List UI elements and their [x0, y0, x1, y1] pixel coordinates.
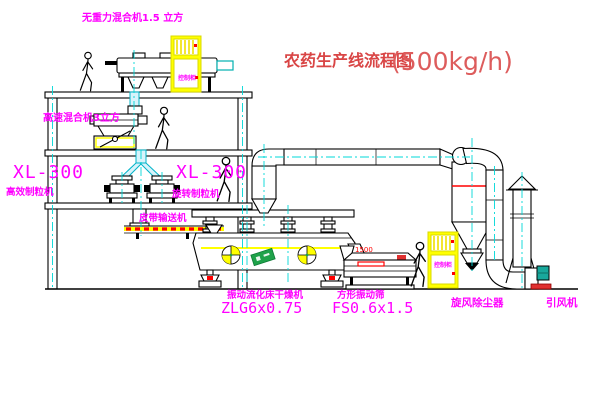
dryer-foot-left	[199, 270, 221, 287]
label-granulator-left-name: 高效制粒机	[6, 186, 54, 198]
building-slab-roof	[45, 92, 252, 98]
label-fan: 引风机	[546, 296, 578, 309]
fan-base	[531, 284, 551, 289]
diagram-title-capacity: (500kg/h)	[391, 47, 513, 76]
control-cabinet-1	[171, 36, 201, 92]
building-slab-mid	[45, 150, 252, 156]
exhaust-duct	[252, 149, 456, 213]
building-slab-low	[45, 203, 252, 209]
label-dryer-model: ZLG6x0.75	[221, 299, 302, 317]
label-belt-conveyor: 皮带输送机	[138, 212, 187, 224]
square-vibrating-screen	[340, 244, 416, 289]
label-cabinet-1: 控制柜	[178, 74, 196, 82]
label-high-speed-mixer: 高速混合机3立方	[43, 111, 120, 124]
label-granulator-right-model: XL-300	[176, 162, 247, 183]
induced-draft-fan	[525, 266, 551, 289]
flow-diagram-canvas: 无重力混合机1.5 立方 农药生产线流程图 (500kg/h) 高速混合机3立方…	[0, 0, 600, 403]
label-screen-dimension: 1500	[355, 246, 373, 254]
label-gravity-mixer: 无重力混合机1.5 立方	[81, 11, 183, 24]
dryer-body	[193, 233, 355, 270]
dryer-foot-right	[321, 270, 343, 287]
control-cabinet-2	[428, 232, 458, 288]
label-granulator-left-model: XL-300	[13, 162, 84, 183]
fluid-bed-dryer	[192, 210, 355, 287]
person-2	[156, 107, 169, 148]
label-cyclone: 旋风除尘器	[450, 296, 504, 309]
label-screen-model: FS0.6x1.5	[332, 299, 413, 317]
dryer-top-manifold	[192, 210, 354, 217]
dryer-target-mark-2	[298, 246, 316, 264]
person-1	[80, 52, 92, 90]
label-granulator-right-name: 旋转制粒机	[171, 188, 220, 200]
label-cabinet-2: 控制柜	[434, 261, 452, 269]
gravity-mixer	[105, 53, 233, 92]
dryer-target-mark-1	[222, 246, 240, 264]
mixer-outlet-fitting	[217, 61, 233, 70]
